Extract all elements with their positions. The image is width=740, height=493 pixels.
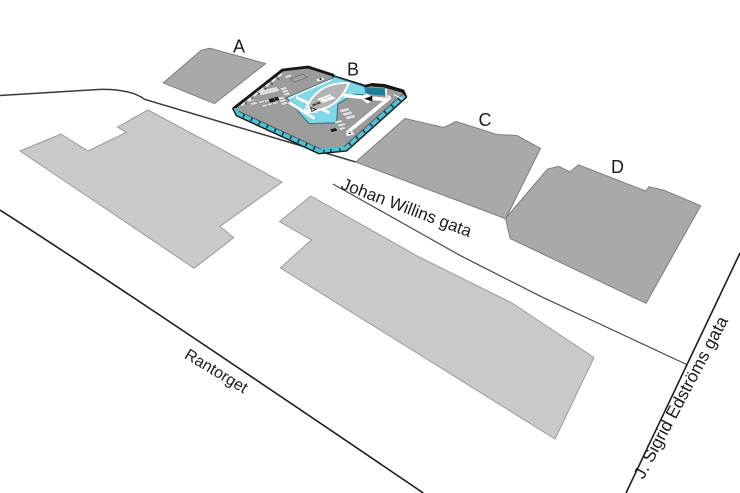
svg-text:D: D <box>611 157 624 177</box>
svg-text:J. Sigrid Edströms gata: J. Sigrid Edströms gata <box>629 313 732 482</box>
svg-text:Rantorget: Rantorget <box>181 346 250 397</box>
svg-text:A: A <box>233 37 245 57</box>
svg-text:B: B <box>347 60 359 80</box>
svg-text:C: C <box>479 110 492 130</box>
